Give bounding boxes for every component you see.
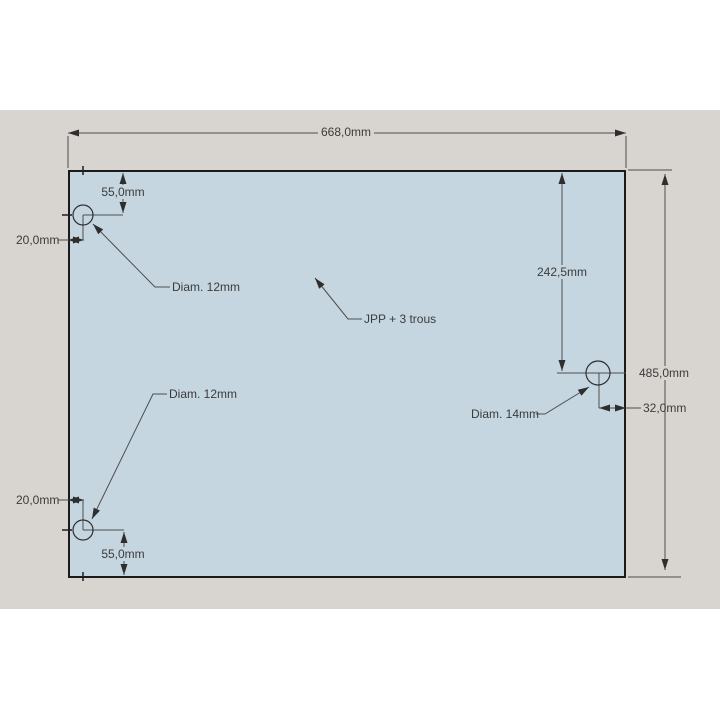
overall-height-label: 485,0mm: [636, 366, 692, 380]
right-hole-from-top-label: 242,5mm: [534, 265, 590, 279]
bottom-hole-from-bottom-label: 55,0mm: [98, 547, 147, 561]
top-hole-from-top-label: 55,0mm: [98, 185, 147, 199]
bottom-hole-from-left-label: 20,0mm: [16, 493, 59, 507]
drawing-page: 668,0mm 55,0mm 20,0mm Diam. 12mm JPP + 3…: [0, 0, 720, 720]
right-hole-from-edge-label: 32,0mm: [643, 401, 686, 415]
right-hole-diameter-label: Diam. 14mm: [471, 407, 539, 421]
part-note-label: JPP + 3 trous: [364, 312, 436, 326]
overall-width-label: 668,0mm: [318, 125, 374, 139]
bottom-hole-diameter-label: Diam. 12mm: [169, 387, 237, 401]
top-hole-from-left-label: 20,0mm: [16, 233, 59, 247]
top-hole-diameter-label: Diam. 12mm: [172, 280, 240, 294]
panel-outline: [68, 170, 626, 578]
